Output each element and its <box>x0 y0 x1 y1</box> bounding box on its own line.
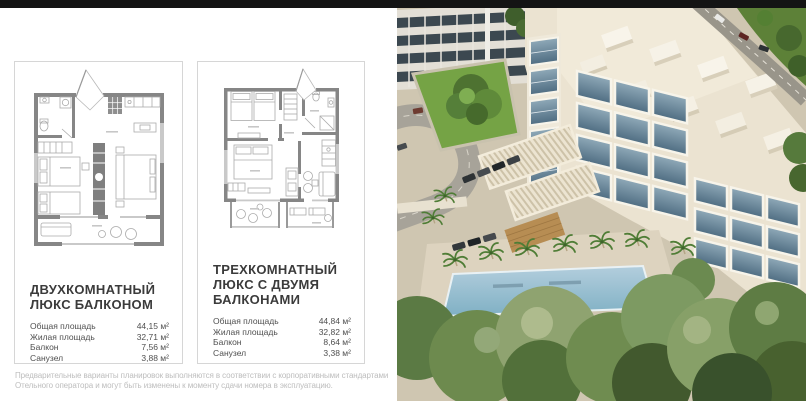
spec-label: Санузел <box>30 353 63 364</box>
spec-row: Жилая площадь 32,82 м² <box>213 327 351 338</box>
floorplan-svg-three-room <box>224 66 339 230</box>
plan-specs-three-room: Общая площадь 44,84 м² Жилая площадь 32,… <box>198 316 364 358</box>
plan-title-two-room: ДВУХКОМНАТНЫЙ ЛЮКС БАЛКОНОМ <box>15 282 182 312</box>
plan-title-three-room: ТРЕХКОМНАТНЫЙ ЛЮКС С ДВУМЯ БАЛКОНАМИ <box>198 262 364 307</box>
disclaimer-text: Предварительные варианты планировок выпо… <box>15 371 395 390</box>
floorplan-svg-two-room <box>34 67 164 246</box>
plan-title-line: ЛЮКС БАЛКОНОМ <box>30 297 168 312</box>
spec-value: 32,82 м² <box>319 327 351 338</box>
spec-label: Балкон <box>30 342 59 353</box>
spec-label: Балкон <box>213 337 242 348</box>
spec-row: Балкон 8,64 м² <box>213 337 351 348</box>
brochure-page: ДВУХКОМНАТНЫЙ ЛЮКС БАЛКОНОМ Общая площад… <box>0 0 806 401</box>
spec-value: 32,71 м² <box>137 332 169 343</box>
spec-label: Общая площадь <box>30 321 96 332</box>
spec-value: 7,56 м² <box>141 342 169 353</box>
plan-title-line: БАЛКОНАМИ <box>213 292 350 307</box>
aerial-photo-svg <box>397 8 806 401</box>
floorplan-card-three-room[interactable]: ТРЕХКОМНАТНЫЙ ЛЮКС С ДВУМЯ БАЛКОНАМИ Общ… <box>197 61 365 364</box>
spec-row: Санузел 3,88 м² <box>30 353 169 364</box>
spec-value: 44,84 м² <box>319 316 351 327</box>
plan-specs-two-room: Общая площадь 44,15 м² Жилая площадь 32,… <box>15 321 182 363</box>
plan-title-line: ДВУХКОМНАТНЫЙ <box>30 282 168 297</box>
spec-label: Жилая площадь <box>30 332 95 343</box>
complex-aerial-photo <box>397 8 806 401</box>
plan-title-line: ЛЮКС С ДВУМЯ <box>213 277 350 292</box>
floorplan-drawing-three-room <box>224 66 339 230</box>
spec-row: Общая площадь 44,15 м² <box>30 321 169 332</box>
spec-label: Жилая площадь <box>213 327 278 338</box>
spec-value: 3,88 м² <box>141 353 169 364</box>
plan-title-line: ТРЕХКОМНАТНЫЙ <box>213 262 350 277</box>
spec-row: Санузел 3,38 м² <box>213 348 351 359</box>
spec-row: Жилая площадь 32,71 м² <box>30 332 169 343</box>
spec-value: 44,15 м² <box>137 321 169 332</box>
spec-value: 8,64 м² <box>323 337 351 348</box>
floorplan-drawing-two-room <box>34 67 164 246</box>
spec-row: Балкон 7,56 м² <box>30 342 169 353</box>
top-black-bar <box>0 0 806 8</box>
spec-value: 3,38 м² <box>323 348 351 359</box>
spec-label: Санузел <box>213 348 246 359</box>
spec-row: Общая площадь 44,84 м² <box>213 316 351 327</box>
spec-label: Общая площадь <box>213 316 279 327</box>
floorplan-card-two-room[interactable]: ДВУХКОМНАТНЫЙ ЛЮКС БАЛКОНОМ Общая площад… <box>14 61 183 364</box>
